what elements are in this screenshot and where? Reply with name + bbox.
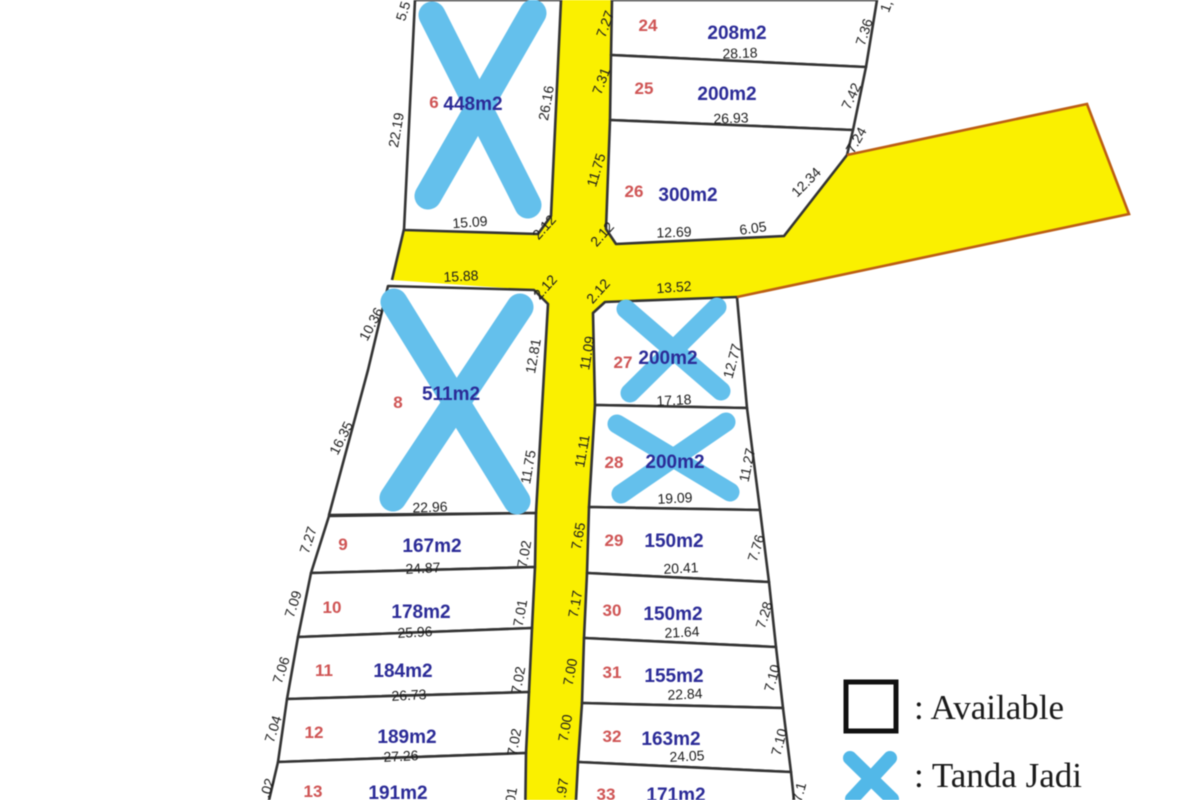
svg-text:167m2: 167m2	[402, 536, 461, 557]
svg-text:25.96: 25.96	[397, 623, 433, 641]
svg-text:28.18: 28.18	[722, 44, 758, 61]
svg-text:155m2: 155m2	[644, 666, 703, 687]
svg-text:13: 13	[304, 782, 323, 800]
svg-text:200m2: 200m2	[645, 452, 704, 473]
svg-text:9: 9	[338, 535, 347, 554]
svg-text:24.05: 24.05	[669, 747, 705, 765]
svg-text:12: 12	[305, 723, 324, 742]
svg-text:300m2: 300m2	[658, 185, 717, 206]
svg-text:11: 11	[315, 661, 333, 680]
svg-text:448m2: 448m2	[443, 94, 502, 115]
svg-text:27.26: 27.26	[383, 747, 419, 765]
svg-text:22.84: 22.84	[667, 685, 703, 703]
svg-text:: Tanda Jadi: : Tanda Jadi	[914, 756, 1082, 795]
svg-text:13.52: 13.52	[656, 278, 692, 296]
svg-text:22.96: 22.96	[412, 498, 448, 515]
svg-text:31: 31	[603, 663, 622, 682]
svg-text:30: 30	[603, 601, 622, 620]
svg-text:32: 32	[603, 727, 622, 746]
svg-text:26: 26	[625, 182, 644, 201]
svg-text:24.87: 24.87	[405, 559, 441, 577]
svg-text:24: 24	[639, 16, 658, 35]
svg-text:189m2: 189m2	[377, 727, 436, 748]
svg-text:15.09: 15.09	[452, 213, 488, 231]
svg-text:200m2: 200m2	[697, 84, 756, 105]
svg-text:21.64: 21.64	[664, 623, 700, 641]
svg-text:8: 8	[393, 393, 402, 412]
svg-text:26.73: 26.73	[391, 686, 427, 704]
svg-text:25: 25	[635, 79, 654, 98]
svg-text:200m2: 200m2	[638, 348, 697, 369]
svg-text:33: 33	[597, 785, 616, 800]
svg-text:15.88: 15.88	[443, 267, 479, 285]
svg-text:150m2: 150m2	[643, 604, 702, 625]
svg-text:191m2: 191m2	[368, 783, 427, 800]
svg-text:184m2: 184m2	[373, 661, 432, 682]
svg-text:19.09: 19.09	[657, 489, 693, 507]
svg-text:28: 28	[605, 453, 624, 472]
svg-text:208m2: 208m2	[707, 23, 766, 44]
svg-text:10: 10	[323, 598, 342, 617]
svg-text:171m2: 171m2	[646, 785, 705, 800]
svg-text:6: 6	[429, 93, 438, 112]
svg-text:: Available: : Available	[914, 688, 1064, 727]
svg-text:17.18: 17.18	[656, 391, 692, 409]
svg-text:20.41: 20.41	[663, 559, 699, 577]
svg-text:150m2: 150m2	[644, 531, 703, 552]
svg-text:27: 27	[614, 353, 633, 372]
svg-text:.97: .97	[552, 777, 571, 799]
svg-text:29: 29	[605, 531, 624, 550]
svg-text:12.69: 12.69	[656, 223, 692, 240]
svg-text:511m2: 511m2	[422, 384, 480, 405]
svg-text:26.93: 26.93	[713, 109, 749, 126]
svg-text:178m2: 178m2	[391, 602, 450, 623]
